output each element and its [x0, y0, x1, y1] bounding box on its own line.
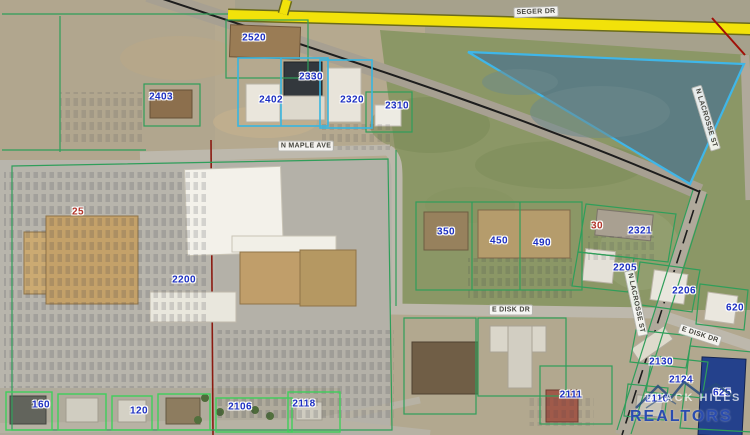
aerial-basemap [0, 0, 750, 435]
map-canvas[interactable]: 2520240323302402232023102522003504504903… [0, 0, 750, 435]
